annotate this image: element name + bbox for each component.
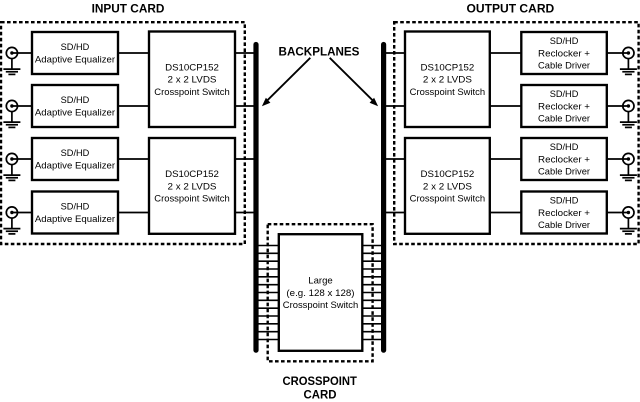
svg-text:DS10CP152: DS10CP152 — [421, 62, 475, 73]
svg-text:Cable Driver: Cable Driver — [538, 114, 590, 125]
svg-text:OUTPUT CARD: OUTPUT CARD — [467, 1, 555, 15]
svg-text:Adaptive Equalizer: Adaptive Equalizer — [35, 55, 115, 66]
svg-text:DS10CP152: DS10CP152 — [165, 62, 219, 73]
svg-text:Reclocker +: Reclocker + — [538, 48, 590, 59]
svg-text:Cable Driver: Cable Driver — [538, 220, 590, 231]
svg-text:Crosspoint Switch: Crosspoint Switch — [410, 194, 486, 205]
svg-text:SD/HD: SD/HD — [61, 95, 90, 106]
svg-text:DS10CP152: DS10CP152 — [165, 169, 219, 180]
svg-text:Reclocker +: Reclocker + — [538, 208, 590, 219]
svg-text:SD/HD: SD/HD — [550, 36, 579, 47]
svg-text:Cable Driver: Cable Driver — [538, 61, 590, 72]
svg-text:2 x 2 LVDS: 2 x 2 LVDS — [423, 181, 472, 192]
svg-text:Reclocker +: Reclocker + — [538, 154, 590, 165]
svg-text:Adaptive Equalizer: Adaptive Equalizer — [35, 214, 115, 225]
svg-text:Reclocker +: Reclocker + — [538, 101, 590, 112]
svg-text:DS10CP152: DS10CP152 — [421, 169, 475, 180]
svg-text:CROSSPOINT: CROSSPOINT — [283, 374, 358, 388]
svg-text:SD/HD: SD/HD — [61, 202, 90, 213]
svg-text:SD/HD: SD/HD — [550, 89, 579, 100]
svg-text:2 x 2 LVDS: 2 x 2 LVDS — [168, 75, 217, 86]
svg-text:Crosspoint Switch: Crosspoint Switch — [283, 300, 359, 311]
svg-text:SD/HD: SD/HD — [61, 148, 90, 159]
svg-text:SD/HD: SD/HD — [550, 196, 579, 207]
svg-text:CARD: CARD — [304, 388, 337, 402]
svg-text:BACKPLANES: BACKPLANES — [279, 44, 360, 58]
svg-text:SD/HD: SD/HD — [61, 42, 90, 53]
svg-text:INPUT CARD: INPUT CARD — [92, 2, 165, 16]
svg-text:(e.g. 128 x 128): (e.g. 128 x 128) — [286, 288, 354, 299]
svg-text:Cable Driver: Cable Driver — [538, 167, 590, 178]
svg-text:2 x 2 LVDS: 2 x 2 LVDS — [423, 75, 472, 86]
svg-text:Crosspoint Switch: Crosspoint Switch — [410, 87, 486, 98]
svg-text:Adaptive Equalizer: Adaptive Equalizer — [35, 108, 115, 119]
svg-text:Adaptive Equalizer: Adaptive Equalizer — [35, 161, 115, 172]
svg-text:Crosspoint Switch: Crosspoint Switch — [154, 87, 230, 98]
svg-text:Crosspoint Switch: Crosspoint Switch — [154, 194, 230, 205]
svg-text:SD/HD: SD/HD — [550, 142, 579, 153]
svg-text:Large: Large — [308, 276, 333, 287]
svg-text:2 x 2 LVDS: 2 x 2 LVDS — [168, 181, 217, 192]
